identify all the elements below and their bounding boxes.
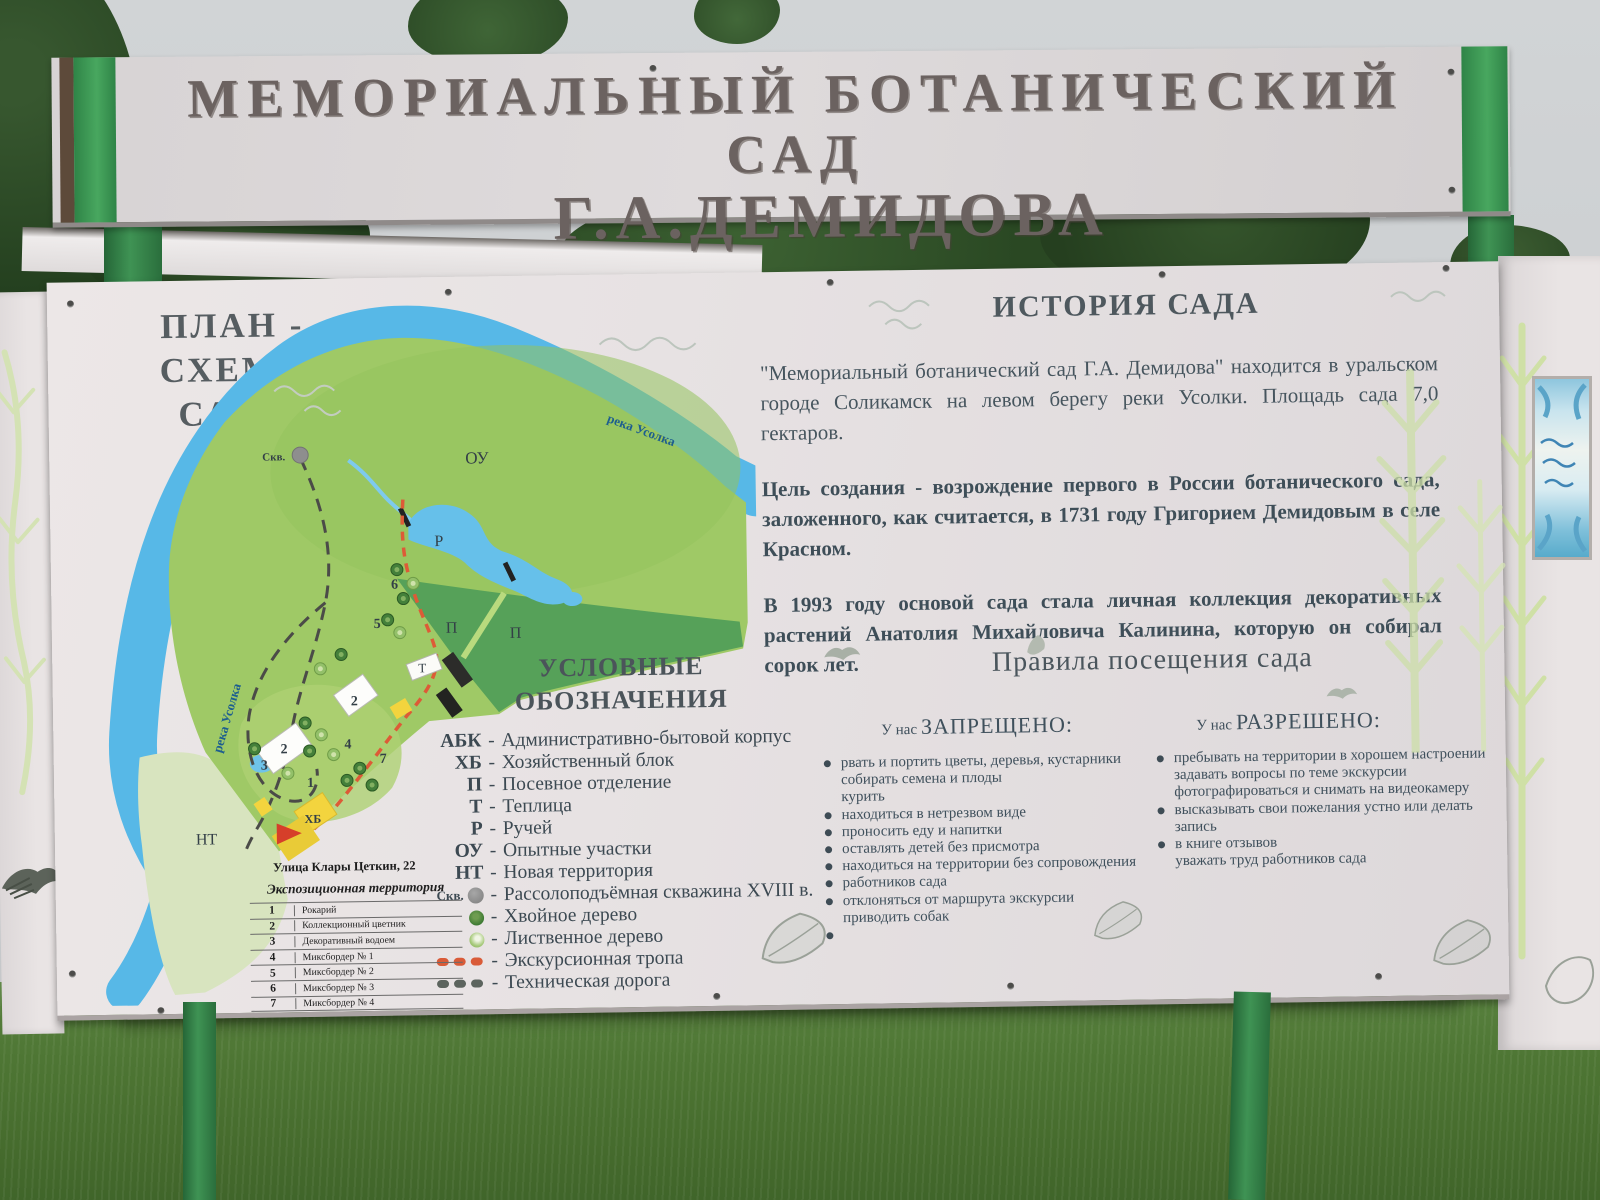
- bullet-dot: [825, 812, 832, 819]
- exposition-table: Экспозиционная территория 1 Рокарий 2 Ко…: [250, 879, 464, 1012]
- bullet-dot: [825, 829, 832, 836]
- bullet-dot: [826, 898, 833, 905]
- small-blue-poster: [1532, 376, 1592, 560]
- allowed-head: РАЗРЕШЕНО:: [1236, 707, 1381, 734]
- rule-text: курить: [841, 789, 885, 807]
- table-row-number: 5: [251, 967, 295, 980]
- table-row-name: Миксбордер № 2: [295, 965, 463, 978]
- screw: [1447, 69, 1454, 76]
- bullet-dot: [826, 932, 833, 939]
- rule-item: уважать труд работников сада: [1158, 849, 1493, 871]
- legend-separator: -: [485, 972, 505, 994]
- legend-separator: -: [483, 862, 503, 884]
- poster-blue-art: [1539, 385, 1585, 551]
- legend-title-line2: ОБОЗНАЧЕНИЯ: [423, 680, 820, 719]
- history-paragraph: Цель создания - возрождение первого в Ро…: [762, 464, 1441, 564]
- brine-well-marker: [292, 447, 308, 463]
- forbidden-heading: У нас ЗАПРЕЩЕНО:: [881, 710, 1158, 740]
- screw: [827, 279, 834, 286]
- forbidden-head: ЗАПРЕЩЕНО:: [921, 712, 1073, 739]
- board-leg-left: [183, 1002, 216, 1200]
- rules-title: Правила посещения сада: [932, 641, 1372, 680]
- title-sign-green-band-right: [1461, 46, 1508, 211]
- legend-icon: [469, 932, 484, 947]
- map-label-2a: 2: [351, 694, 358, 709]
- table-row-number: 4: [251, 951, 295, 964]
- legend-code: ОУ: [377, 840, 483, 864]
- table-row-number: 3: [250, 936, 294, 949]
- rule-text: работников сада: [842, 874, 947, 893]
- table-row-name: Рокарий: [294, 903, 462, 916]
- map-label-r: Р: [434, 533, 443, 550]
- allowed-list: пребывать на территории в хорошем настро…: [1157, 745, 1494, 870]
- legend-separator: -: [483, 840, 503, 862]
- map-label-nt: НТ: [196, 831, 218, 848]
- table-row-name: Коллекционный цветник: [294, 918, 462, 931]
- poster-script-art: [1541, 440, 1575, 487]
- legend-code: Т: [376, 796, 482, 820]
- rule-text: собирать семена и плоды: [841, 770, 1002, 790]
- rule-text: в книге отзывов: [1175, 835, 1277, 854]
- table-row-name: Миксбордер № 3: [295, 980, 463, 993]
- bullet-dot: [824, 760, 831, 767]
- table-row: 7 Миксбордер № 4: [251, 993, 463, 1012]
- title-sign: МЕМОРИАЛЬНЫЙ БОТАНИЧЕСКИЙ САД Г.А.ДЕМИДО…: [51, 46, 1510, 227]
- map-label-5: 5: [374, 617, 381, 632]
- map-label-3: 3: [261, 759, 268, 774]
- leaf-icon: [1428, 913, 1501, 970]
- legend-separator: -: [482, 752, 502, 774]
- map-label-6: 6: [391, 578, 398, 593]
- bullet-dot: [825, 846, 832, 853]
- pale-branch-art: [5, 352, 32, 792]
- screw: [1375, 973, 1382, 980]
- legend-icon: [468, 887, 484, 903]
- legend-separator: -: [484, 884, 504, 906]
- legend-separator: -: [482, 774, 502, 796]
- map-label-1: 1: [307, 776, 314, 791]
- legend-code: П: [376, 774, 482, 798]
- table-row-number: 1: [250, 905, 294, 918]
- screw: [1442, 265, 1449, 272]
- title-sign-green-band-left: [73, 57, 116, 222]
- sign-title: МЕМОРИАЛЬНЫЙ БОТАНИЧЕСКИЙ САД Г.А.ДЕМИДО…: [141, 59, 1450, 255]
- main-information-board: ПЛАН - СХЕМА САДА: [47, 261, 1510, 1020]
- screw: [67, 300, 74, 307]
- rules-allowed: У нас РАЗРЕШЕНО: пребывать на территории…: [1156, 705, 1493, 870]
- legend-separator: -: [481, 730, 501, 752]
- allowed-heading: У нас РАЗРЕШЕНО:: [1196, 705, 1491, 735]
- bullet-dot: [1157, 755, 1164, 762]
- rule-text: отклоняться от маршрута экскурсии: [843, 889, 1074, 910]
- map-label-p2: П: [510, 625, 522, 642]
- screw: [1007, 983, 1014, 990]
- legend-code: ХБ: [376, 752, 482, 776]
- bullet-dot: [1158, 807, 1165, 814]
- map-label-4: 4: [344, 737, 351, 752]
- legend-separator: -: [482, 796, 502, 818]
- legend-separator: -: [484, 906, 504, 928]
- forbidden-prefix: У нас: [881, 722, 917, 739]
- rules-forbidden: У нас ЗАПРЕЩЕНО: рвать и портить цветы, …: [823, 710, 1161, 944]
- leaf-icon: [1546, 957, 1593, 1003]
- screw: [1159, 271, 1166, 278]
- table-row-number: 6: [251, 982, 295, 995]
- side-panel-right: [1498, 256, 1600, 1050]
- bullet-dot: [825, 863, 832, 870]
- screw: [445, 289, 452, 296]
- rule-text: уважать труд работников сада: [1175, 851, 1366, 871]
- rule-text: запись: [1175, 818, 1217, 836]
- legend-icon: [469, 910, 484, 925]
- table-row-name: Декоративный водоем: [294, 934, 462, 947]
- screw: [157, 1007, 164, 1014]
- legend-code: Р: [377, 818, 483, 842]
- table-row-name: Миксбордер № 1: [295, 949, 463, 962]
- legend-code: АБК: [375, 730, 481, 754]
- screw: [1448, 187, 1455, 194]
- legend-separator: -: [483, 818, 503, 840]
- table-row-name: Миксбордер № 4: [295, 996, 463, 1009]
- sign-title-line1: МЕМОРИАЛЬНЫЙ БОТАНИЧЕСКИЙ САД: [141, 59, 1450, 189]
- screw: [713, 993, 720, 1000]
- map-label-p1: П: [446, 620, 458, 637]
- bullet-dot: [1158, 841, 1165, 848]
- history-paragraphs: "Мемориальный ботанический сад Г.А. Деми…: [760, 348, 1443, 680]
- legend-separator: -: [484, 928, 504, 950]
- screw: [649, 65, 656, 72]
- photo-of-garden-information-board: МЕМОРИАЛЬНЫЙ БОТАНИЧЕСКИЙ САД Г.А.ДЕМИДО…: [0, 0, 1600, 1200]
- bullet-dot: [826, 881, 833, 888]
- map-label-hb: ХБ: [304, 812, 321, 826]
- exposition-table-rows: 1 Рокарий 2 Коллекционный цветник 3 Деко…: [250, 900, 464, 1012]
- rule-text: приводить собак: [843, 908, 949, 927]
- table-row-number: 7: [251, 998, 295, 1011]
- board-leg-right: [1228, 992, 1271, 1200]
- legend-label: Техническая дорога: [505, 967, 824, 994]
- title-sign-post-edge: [59, 58, 74, 223]
- history-paragraph: "Мемориальный ботанический сад Г.А. Деми…: [760, 348, 1439, 448]
- map-label-ou: ОУ: [465, 448, 490, 467]
- map-label-well: Скв.: [262, 451, 285, 463]
- forbidden-list: рвать и портить цветы, деревья, кустарни…: [824, 750, 1162, 944]
- table-row-number: 2: [250, 920, 294, 933]
- history-title: ИСТОРИЯ САДА: [815, 284, 1437, 327]
- legend-separator: -: [485, 950, 505, 972]
- exposition-table-title: Экспозиционная территория: [250, 879, 462, 898]
- sign-title-line2: Г.А.ДЕМИДОВА: [212, 179, 1450, 255]
- legend-title: УСЛОВНЫЕ ОБОЗНАЧЕНИЯ: [374, 647, 820, 720]
- map-label-2b: 2: [280, 742, 287, 757]
- allowed-prefix: У нас: [1196, 717, 1232, 734]
- screw: [69, 970, 76, 977]
- pale-branch-art: [0, 388, 44, 683]
